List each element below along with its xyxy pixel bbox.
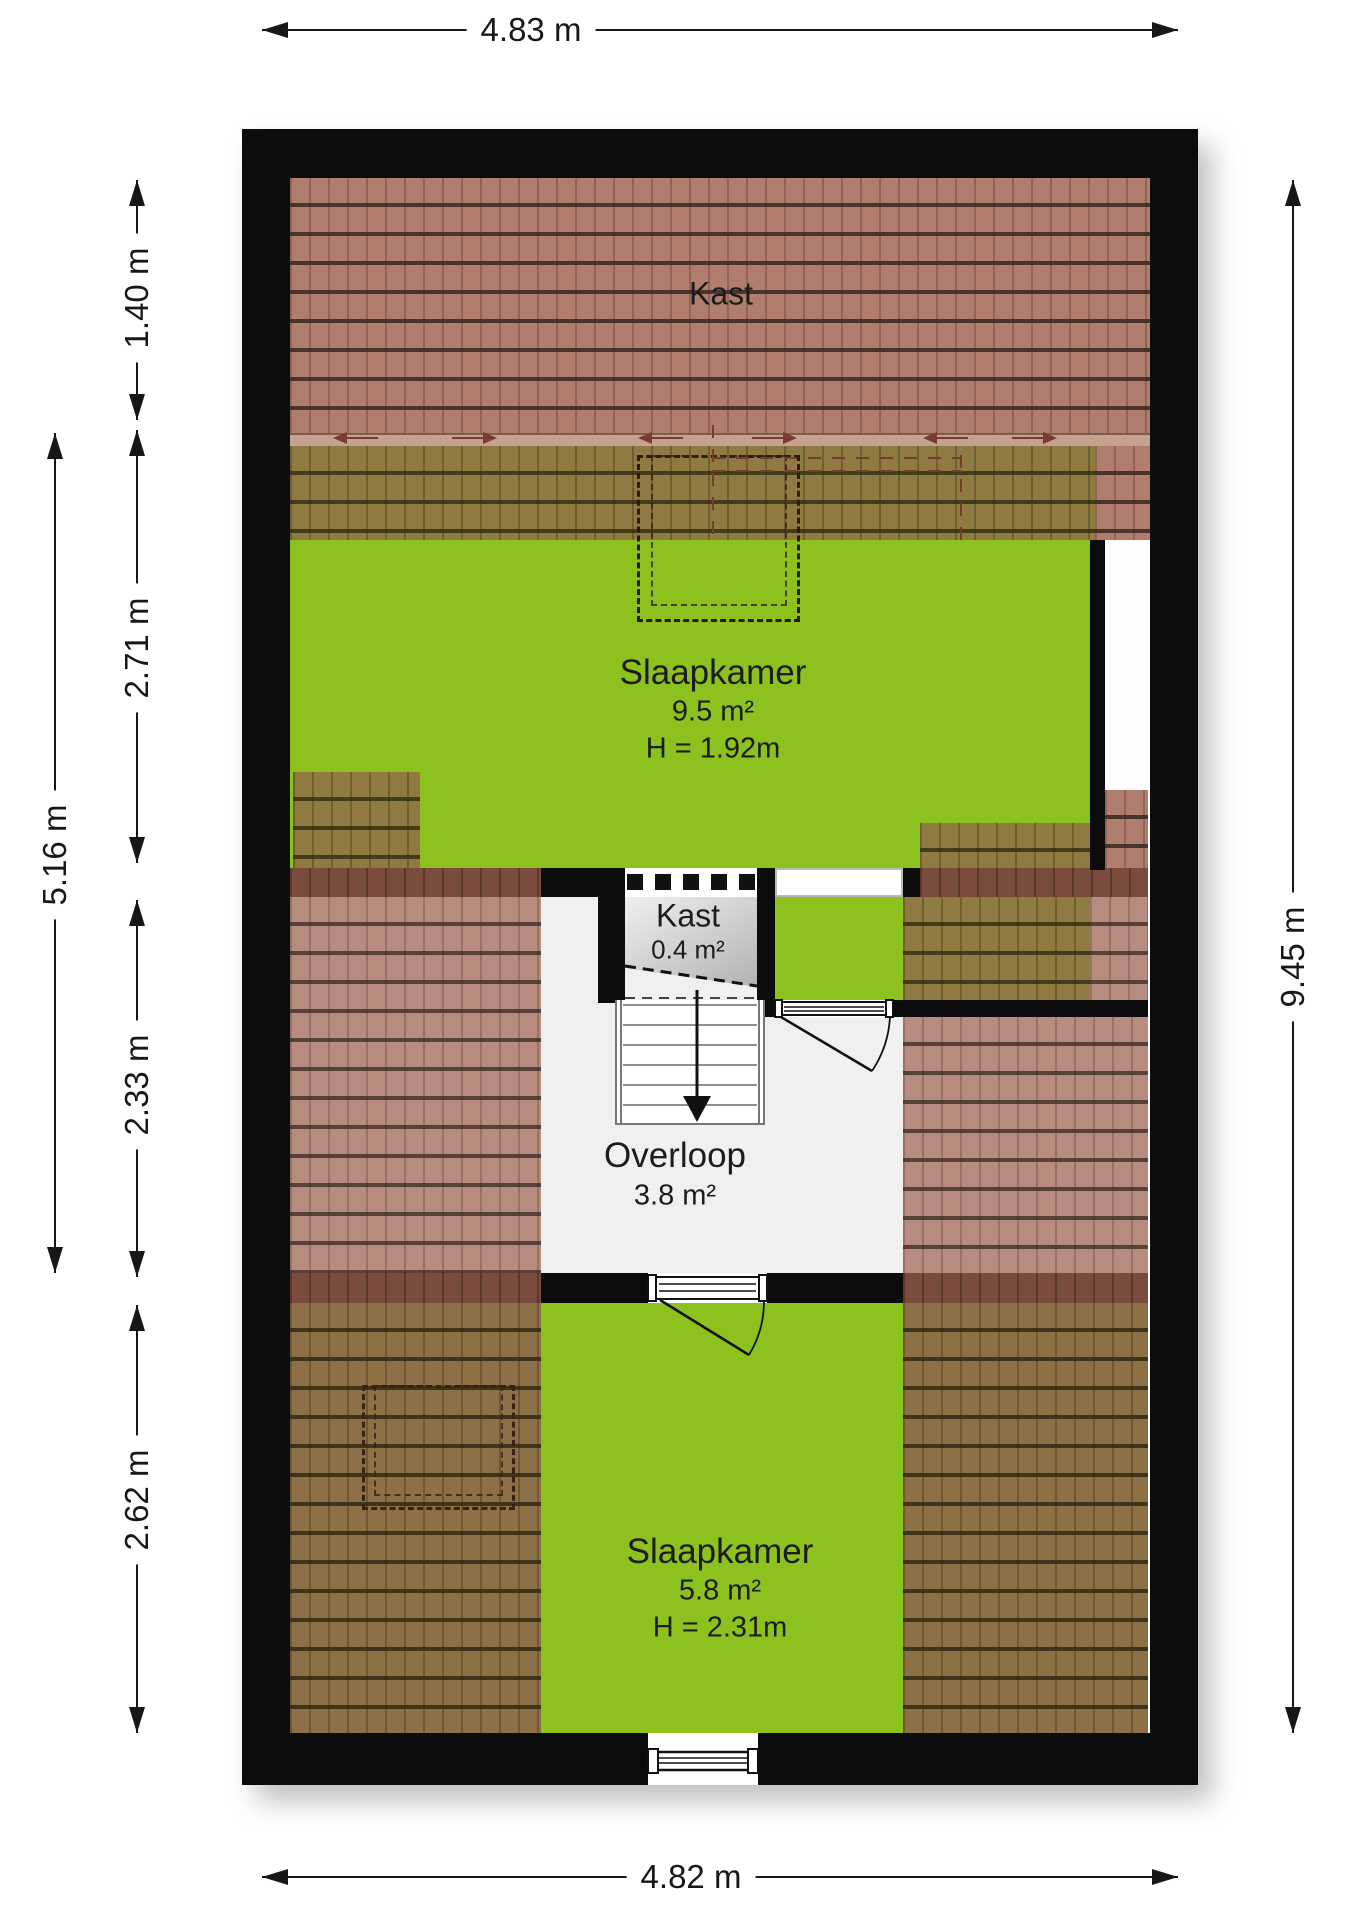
roof-mid-column-right: [903, 1017, 1148, 1273]
roof-ridge-low-right: [903, 1273, 1148, 1305]
wall-stair-side: [598, 897, 625, 1003]
staircase: [615, 1000, 765, 1125]
wall-left: [242, 178, 290, 1733]
wall-mid-c: [903, 868, 920, 897]
roof-ridge-mid-right: [920, 868, 1148, 899]
roof-window-outline-bottom-inner: [374, 1385, 503, 1496]
wall-mid-b: [757, 868, 775, 897]
door-opening-bottom-room: [648, 1273, 767, 1303]
dim-233-arrow-top: [129, 900, 145, 926]
roof-ridge-mid-left: [290, 868, 541, 899]
roof-notch-right: [920, 823, 1090, 868]
label-slaapkamer-top: Slaapkamer: [620, 653, 807, 693]
roof-slope-arrow-2: [452, 437, 495, 439]
dim-top-arrow-right: [1152, 22, 1178, 38]
opening-closet-top: [625, 868, 757, 897]
dim-top-label: 4.83 m: [467, 11, 596, 49]
dim-262-label: 2.62 m: [118, 1436, 156, 1565]
label-slaapkamer-bottom-height: H = 2.31m: [653, 1612, 788, 1645]
roof-mid-right-edge: [1090, 897, 1148, 1000]
roof-marking-line-3: [712, 425, 714, 540]
dim-140-arrow-top: [129, 180, 145, 206]
dim-262-arrow-top: [129, 1305, 145, 1331]
wall-top: [242, 129, 1198, 178]
dim-271-label: 2.71 m: [118, 584, 156, 713]
roof-strip-right: [1105, 790, 1148, 870]
roof-slope-arrow-6: [1012, 437, 1055, 439]
dim-271-arrow-bottom: [129, 837, 145, 863]
dim-516-label: 5.16 m: [36, 791, 74, 920]
dim-945-label: 9.45 m: [1274, 893, 1312, 1022]
dim-233-arrow-bottom: [129, 1251, 145, 1277]
label-slaapkamer-bottom-area: 5.8 m²: [679, 1575, 761, 1608]
wall-closet-side: [757, 897, 775, 1017]
roof-slope-arrow-1: [335, 437, 378, 439]
dim-262-arrow-bottom: [129, 1707, 145, 1733]
roof-olive-band-right-corner: [1095, 446, 1150, 540]
label-overloop-area: 3.8 m²: [634, 1180, 716, 1213]
dim-bottom-arrow-right: [1152, 1869, 1178, 1885]
dim-140-label: 1.40 m: [118, 234, 156, 363]
internal-window-band: [775, 868, 903, 897]
dim-top-line: [262, 29, 1178, 31]
roof-mid-right-over-floor: [903, 897, 1090, 1000]
label-kast-top: Kast: [689, 276, 753, 313]
roof-marking-line-1: [712, 457, 962, 459]
wall-right: [1150, 178, 1198, 1733]
label-slaapkamer-top-area: 9.5 m²: [672, 696, 754, 729]
dim-516-arrow-bottom: [47, 1247, 63, 1273]
dim-bottom-arrow-left: [262, 1869, 288, 1885]
roof-slope-arrow-5: [925, 437, 968, 439]
roof-bottom-left: [290, 1303, 541, 1733]
label-slaapkamer-top-height: H = 1.92m: [646, 733, 781, 766]
wall-door-right: [893, 1000, 1148, 1017]
window-opening-bottom: [648, 1733, 758, 1785]
dim-516-arrow-top: [47, 433, 63, 459]
label-slaapkamer-bottom: Slaapkamer: [627, 1532, 814, 1572]
roof-mid-column-left: [290, 897, 541, 1273]
roof-marking-line-2: [712, 470, 962, 472]
door-opening-right: [775, 1000, 893, 1017]
wall-inner-right: [1090, 540, 1105, 870]
roof-notch-left: [293, 772, 420, 868]
roof-slope-arrow-4: [752, 437, 795, 439]
roof-bottom-right: [903, 1303, 1148, 1733]
roof-ridge-low-left: [290, 1273, 541, 1305]
dim-945-arrow-top: [1285, 180, 1301, 206]
dim-271-arrow-top: [129, 430, 145, 456]
dim-bottom-label: 4.82 m: [627, 1858, 756, 1896]
dim-233-label: 2.33 m: [118, 1021, 156, 1150]
dim-140-arrow-bottom: [129, 394, 145, 420]
void-strip-right: [1105, 540, 1148, 790]
floorplan-canvas: Kast Slaapkamer 9.5 m² H = 1.92m Kast 0.…: [0, 0, 1358, 1920]
label-kast-mid-area: 0.4 m²: [651, 935, 725, 966]
roof-slope-arrow-3: [640, 437, 683, 439]
roof-window-outline-top-inner: [651, 455, 787, 606]
dim-top-arrow-left: [262, 22, 288, 38]
room-slaapkamer-bottom-floor: [541, 1303, 903, 1733]
wall-mid-a: [541, 868, 625, 897]
roof-marking-line-4: [960, 455, 962, 540]
label-overloop: Overloop: [604, 1136, 746, 1176]
label-kast-mid: Kast: [656, 898, 720, 935]
dim-945-arrow-bottom: [1285, 1707, 1301, 1733]
